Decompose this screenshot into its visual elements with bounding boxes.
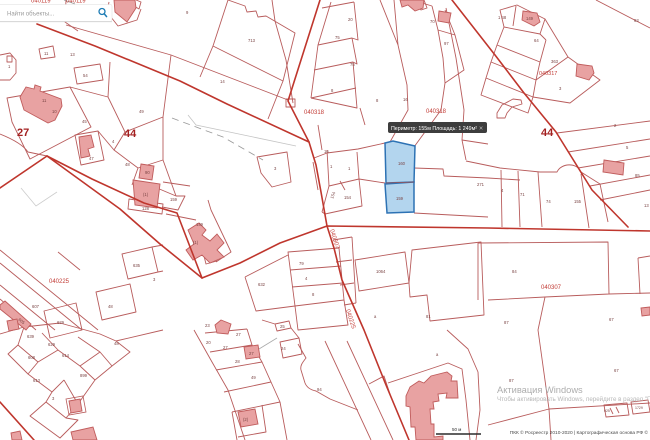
svg-text:94: 94	[317, 387, 322, 392]
svg-text:629: 629	[57, 320, 65, 325]
svg-text:27: 27	[236, 332, 241, 337]
svg-text:(2): (2)	[243, 417, 249, 422]
svg-text:27: 27	[223, 345, 228, 350]
svg-text:(1): (1)	[143, 192, 149, 197]
svg-text:48: 48	[108, 304, 113, 309]
svg-text:71: 71	[520, 192, 525, 197]
svg-text:040318: 040318	[304, 110, 325, 116]
svg-text:040307: 040307	[541, 285, 562, 291]
svg-text:45: 45	[82, 119, 87, 124]
svg-text:84: 84	[512, 269, 517, 274]
svg-text:11: 11	[44, 51, 49, 56]
svg-text:040119: 040119	[31, 0, 51, 5]
svg-text:363: 363	[551, 59, 559, 64]
svg-text:Периметр: 155м Площадь: 1 249м: Периметр: 155м Площадь: 1 249м²	[391, 126, 477, 132]
svg-text:149: 149	[196, 222, 204, 227]
svg-text:13: 13	[70, 52, 75, 57]
svg-text:(1): (1)	[193, 240, 199, 245]
svg-text:23: 23	[205, 323, 210, 328]
svg-text:75: 75	[350, 62, 355, 67]
svg-text:Активация Windows: Активация Windows	[497, 385, 583, 395]
svg-text:63: 63	[634, 18, 639, 23]
svg-text:149: 149	[526, 16, 534, 21]
svg-text:13: 13	[644, 203, 649, 208]
svg-text:49: 49	[251, 375, 256, 380]
svg-text:50 м: 50 м	[452, 427, 461, 432]
svg-text:20: 20	[206, 340, 211, 345]
svg-text:27: 27	[17, 127, 29, 139]
svg-text:67: 67	[614, 368, 619, 373]
svg-text:74: 74	[546, 199, 551, 204]
svg-text:040318: 040318	[426, 109, 447, 115]
svg-text:639: 639	[27, 334, 35, 339]
svg-text:614: 614	[62, 353, 70, 358]
svg-text:90: 90	[145, 170, 150, 175]
svg-text:20: 20	[348, 17, 353, 22]
svg-text:87: 87	[504, 320, 509, 325]
svg-text:24: 24	[281, 346, 286, 351]
svg-text:87: 87	[509, 378, 514, 383]
svg-text:67: 67	[609, 317, 614, 322]
svg-text:16: 16	[403, 97, 408, 102]
svg-text:613: 613	[33, 378, 41, 383]
svg-text:128: 128	[142, 206, 150, 211]
svg-text:10: 10	[52, 109, 57, 114]
svg-text:ПКК © Росреестр 2010-2020 | Ка: ПКК © Росреестр 2010-2020 | Картографиче…	[510, 429, 649, 436]
svg-text:154: 154	[344, 195, 352, 200]
svg-text:608: 608	[28, 355, 36, 360]
svg-text:899: 899	[80, 373, 88, 378]
svg-text:48: 48	[114, 341, 119, 346]
svg-text:×: ×	[479, 126, 483, 133]
svg-text:629: 629	[48, 342, 56, 347]
svg-text:Чтобы активировать Windows, пе: Чтобы активировать Windows, перейдите в …	[497, 396, 650, 403]
svg-text:16: 16	[324, 149, 329, 154]
svg-text:1064: 1064	[376, 269, 386, 274]
svg-text:25: 25	[280, 324, 285, 329]
svg-text:1729: 1729	[635, 406, 643, 410]
svg-text:49: 49	[139, 109, 144, 114]
svg-text:159: 159	[170, 197, 178, 202]
svg-text:79: 79	[299, 261, 304, 266]
svg-text:607: 607	[32, 304, 40, 309]
svg-text:271: 271	[477, 182, 485, 187]
svg-text:Найти объекты...: Найти объекты...	[7, 11, 55, 18]
svg-text:160: 160	[398, 161, 406, 166]
svg-text:48: 48	[125, 162, 130, 167]
svg-text:155: 155	[574, 199, 582, 204]
svg-text:632: 632	[258, 282, 266, 287]
svg-text:97: 97	[444, 41, 449, 46]
svg-text:85: 85	[635, 173, 640, 178]
svg-text:635: 635	[133, 263, 141, 268]
svg-text:81: 81	[426, 314, 431, 319]
svg-text:27: 27	[249, 351, 254, 356]
svg-text:11: 11	[42, 98, 47, 103]
svg-text:75: 75	[335, 35, 340, 40]
svg-text:28: 28	[235, 359, 240, 364]
svg-text:47: 47	[89, 156, 94, 161]
svg-text:44: 44	[124, 128, 137, 140]
svg-text:14: 14	[220, 79, 225, 84]
svg-text:713: 713	[248, 38, 256, 43]
svg-text:159: 159	[396, 196, 404, 201]
svg-text:70: 70	[430, 19, 435, 24]
svg-text:54: 54	[83, 73, 88, 78]
svg-text:025: 025	[604, 409, 610, 413]
svg-text:040225: 040225	[49, 279, 70, 285]
svg-text:64: 64	[534, 38, 539, 43]
svg-text:1 48: 1 48	[498, 15, 507, 20]
svg-text:44: 44	[541, 127, 554, 139]
svg-text:040119: 040119	[66, 0, 86, 5]
svg-text:040317: 040317	[539, 71, 557, 77]
